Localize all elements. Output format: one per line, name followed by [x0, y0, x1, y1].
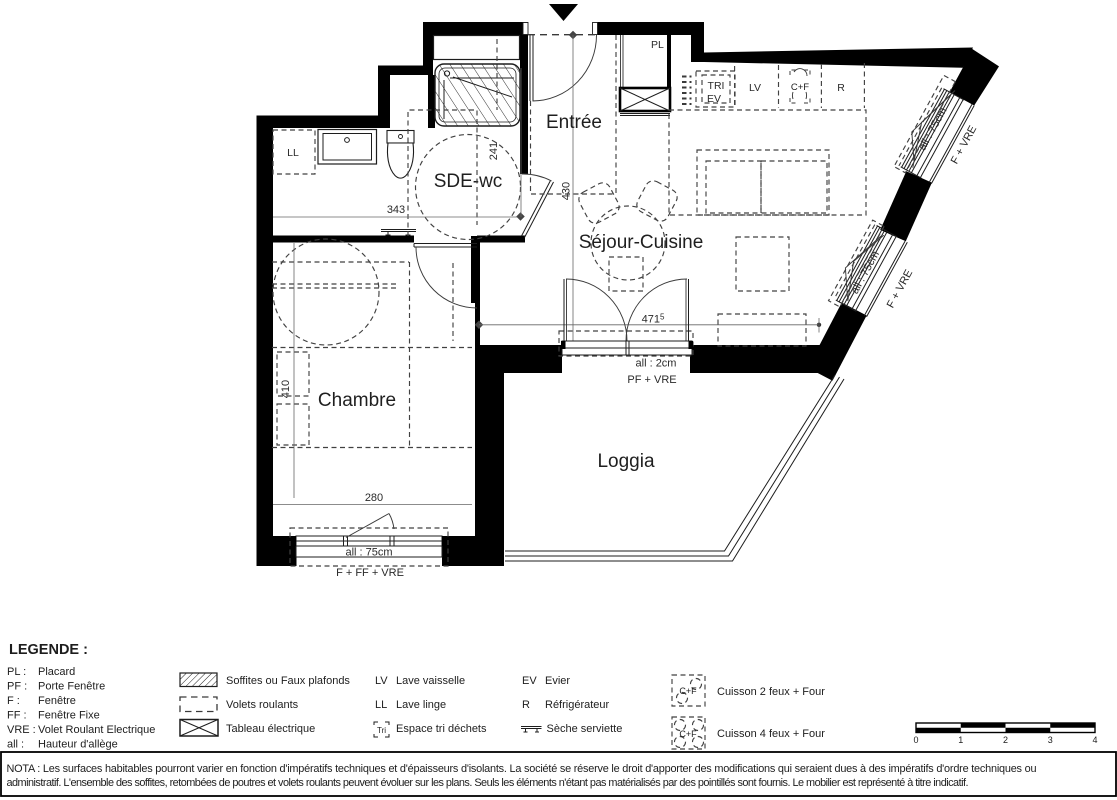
svg-text:Cuisson 4 feux + Four: Cuisson 4 feux + Four	[717, 728, 825, 740]
svg-text:C+F: C+F	[679, 729, 697, 739]
svg-text:all :: all :	[7, 739, 24, 751]
svg-text:LL: LL	[287, 147, 299, 159]
svg-text:EV: EV	[522, 675, 537, 687]
svg-text:LL: LL	[375, 699, 387, 711]
svg-text:Evier: Evier	[545, 675, 570, 687]
svg-text:Cuisson 2 feux + Four: Cuisson 2 feux + Four	[717, 686, 825, 698]
svg-text:4: 4	[1092, 735, 1097, 745]
svg-text:Soffites ou Faux plafonds: Soffites ou Faux plafonds	[226, 675, 350, 687]
svg-text:Réfrigérateur: Réfrigérateur	[545, 699, 610, 711]
svg-text:C+F: C+F	[791, 82, 809, 93]
svg-text:Loggia: Loggia	[597, 451, 654, 472]
svg-text:Chambre: Chambre	[318, 390, 396, 411]
svg-text:R: R	[522, 699, 530, 711]
svg-text:EV: EV	[707, 93, 721, 105]
svg-text:LEGENDE :: LEGENDE :	[9, 642, 88, 658]
svg-text:Volet Roulant Electrique: Volet Roulant Electrique	[38, 724, 155, 736]
svg-text:Fenêtre: Fenêtre	[38, 695, 76, 707]
svg-text:F + FF + VRE: F + FF + VRE	[336, 567, 404, 579]
svg-text:1: 1	[958, 735, 963, 745]
svg-text:PF :: PF :	[7, 681, 27, 693]
svg-text:F :: F :	[7, 695, 20, 707]
svg-text:280: 280	[365, 492, 383, 504]
svg-text:Tri: Tri	[377, 726, 386, 735]
svg-text:0: 0	[913, 735, 918, 745]
svg-text:Fenêtre Fixe: Fenêtre Fixe	[38, 710, 100, 722]
svg-text:NOTA : Les surfaces habitables: NOTA : Les surfaces habitables pourront …	[7, 763, 1037, 775]
svg-text:Espace tri déchets: Espace tri déchets	[396, 723, 487, 735]
svg-text:TRI: TRI	[708, 80, 725, 92]
svg-text:Lave vaisselle: Lave vaisselle	[396, 675, 465, 687]
svg-text:Entrée: Entrée	[546, 112, 602, 133]
svg-text:Séjour-Cuisine: Séjour-Cuisine	[579, 232, 704, 253]
svg-text:administratif. L'ensemble des: administratif. L'ensemble des soffites, …	[7, 777, 969, 789]
svg-text:Tableau électrique: Tableau électrique	[226, 723, 315, 735]
svg-text:PF + VRE: PF + VRE	[627, 374, 676, 386]
svg-text:Porte Fenêtre: Porte Fenêtre	[38, 681, 105, 693]
svg-text:2: 2	[1003, 735, 1008, 745]
svg-text:VRE :: VRE :	[7, 724, 36, 736]
svg-text:Sèche serviette: Sèche serviette	[547, 723, 623, 735]
svg-text:all : 2cm: all : 2cm	[636, 358, 677, 370]
svg-text:Hauteur d'allège: Hauteur d'allège	[38, 739, 118, 751]
svg-text:FF :: FF :	[7, 710, 27, 722]
svg-text:Lave linge: Lave linge	[396, 699, 446, 711]
svg-text:343: 343	[387, 204, 405, 216]
svg-text:241: 241	[488, 142, 500, 160]
svg-text:Placard: Placard	[38, 666, 75, 678]
svg-text:410: 410	[280, 380, 292, 398]
svg-text:C+F: C+F	[679, 686, 697, 696]
svg-text:all : 75cm: all : 75cm	[345, 547, 392, 559]
svg-text:R: R	[837, 82, 845, 94]
svg-text:PL :: PL :	[7, 666, 26, 678]
svg-text:SDE-wc: SDE-wc	[434, 171, 503, 192]
svg-text:LV: LV	[749, 82, 761, 94]
svg-text:430: 430	[561, 182, 573, 200]
svg-text:Volets roulants: Volets roulants	[226, 699, 299, 711]
svg-text:3: 3	[1048, 735, 1053, 745]
svg-text:PL: PL	[651, 39, 664, 51]
svg-text:LV: LV	[375, 675, 388, 687]
